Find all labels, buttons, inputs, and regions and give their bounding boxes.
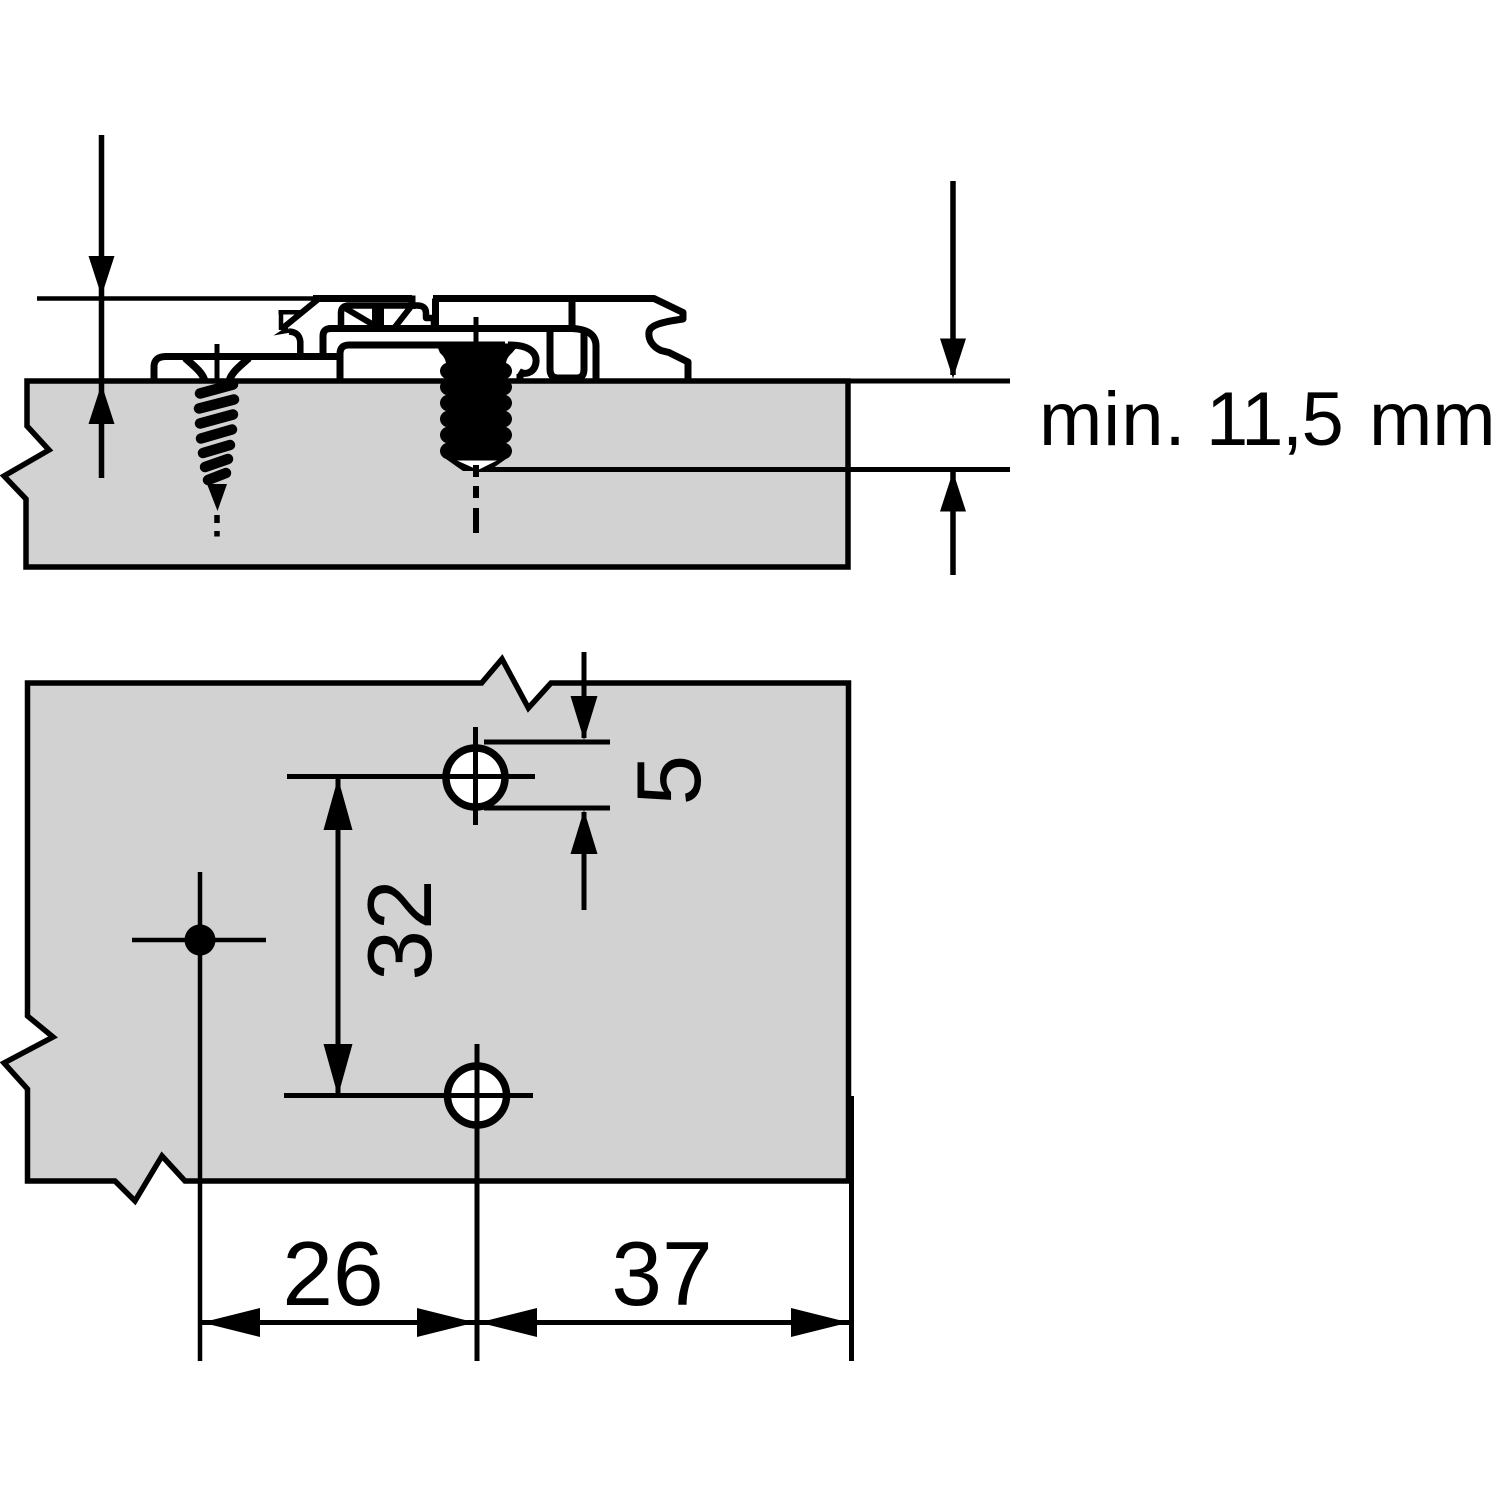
svg-text:5: 5	[619, 755, 720, 806]
svg-text:26: 26	[282, 1224, 383, 1325]
svg-text:11,5: 11,5	[1206, 377, 1342, 462]
svg-text:32: 32	[350, 879, 451, 980]
svg-text:min.: min.	[1039, 377, 1187, 462]
svg-text:37: 37	[611, 1224, 712, 1325]
svg-text:mm: mm	[1369, 377, 1496, 462]
